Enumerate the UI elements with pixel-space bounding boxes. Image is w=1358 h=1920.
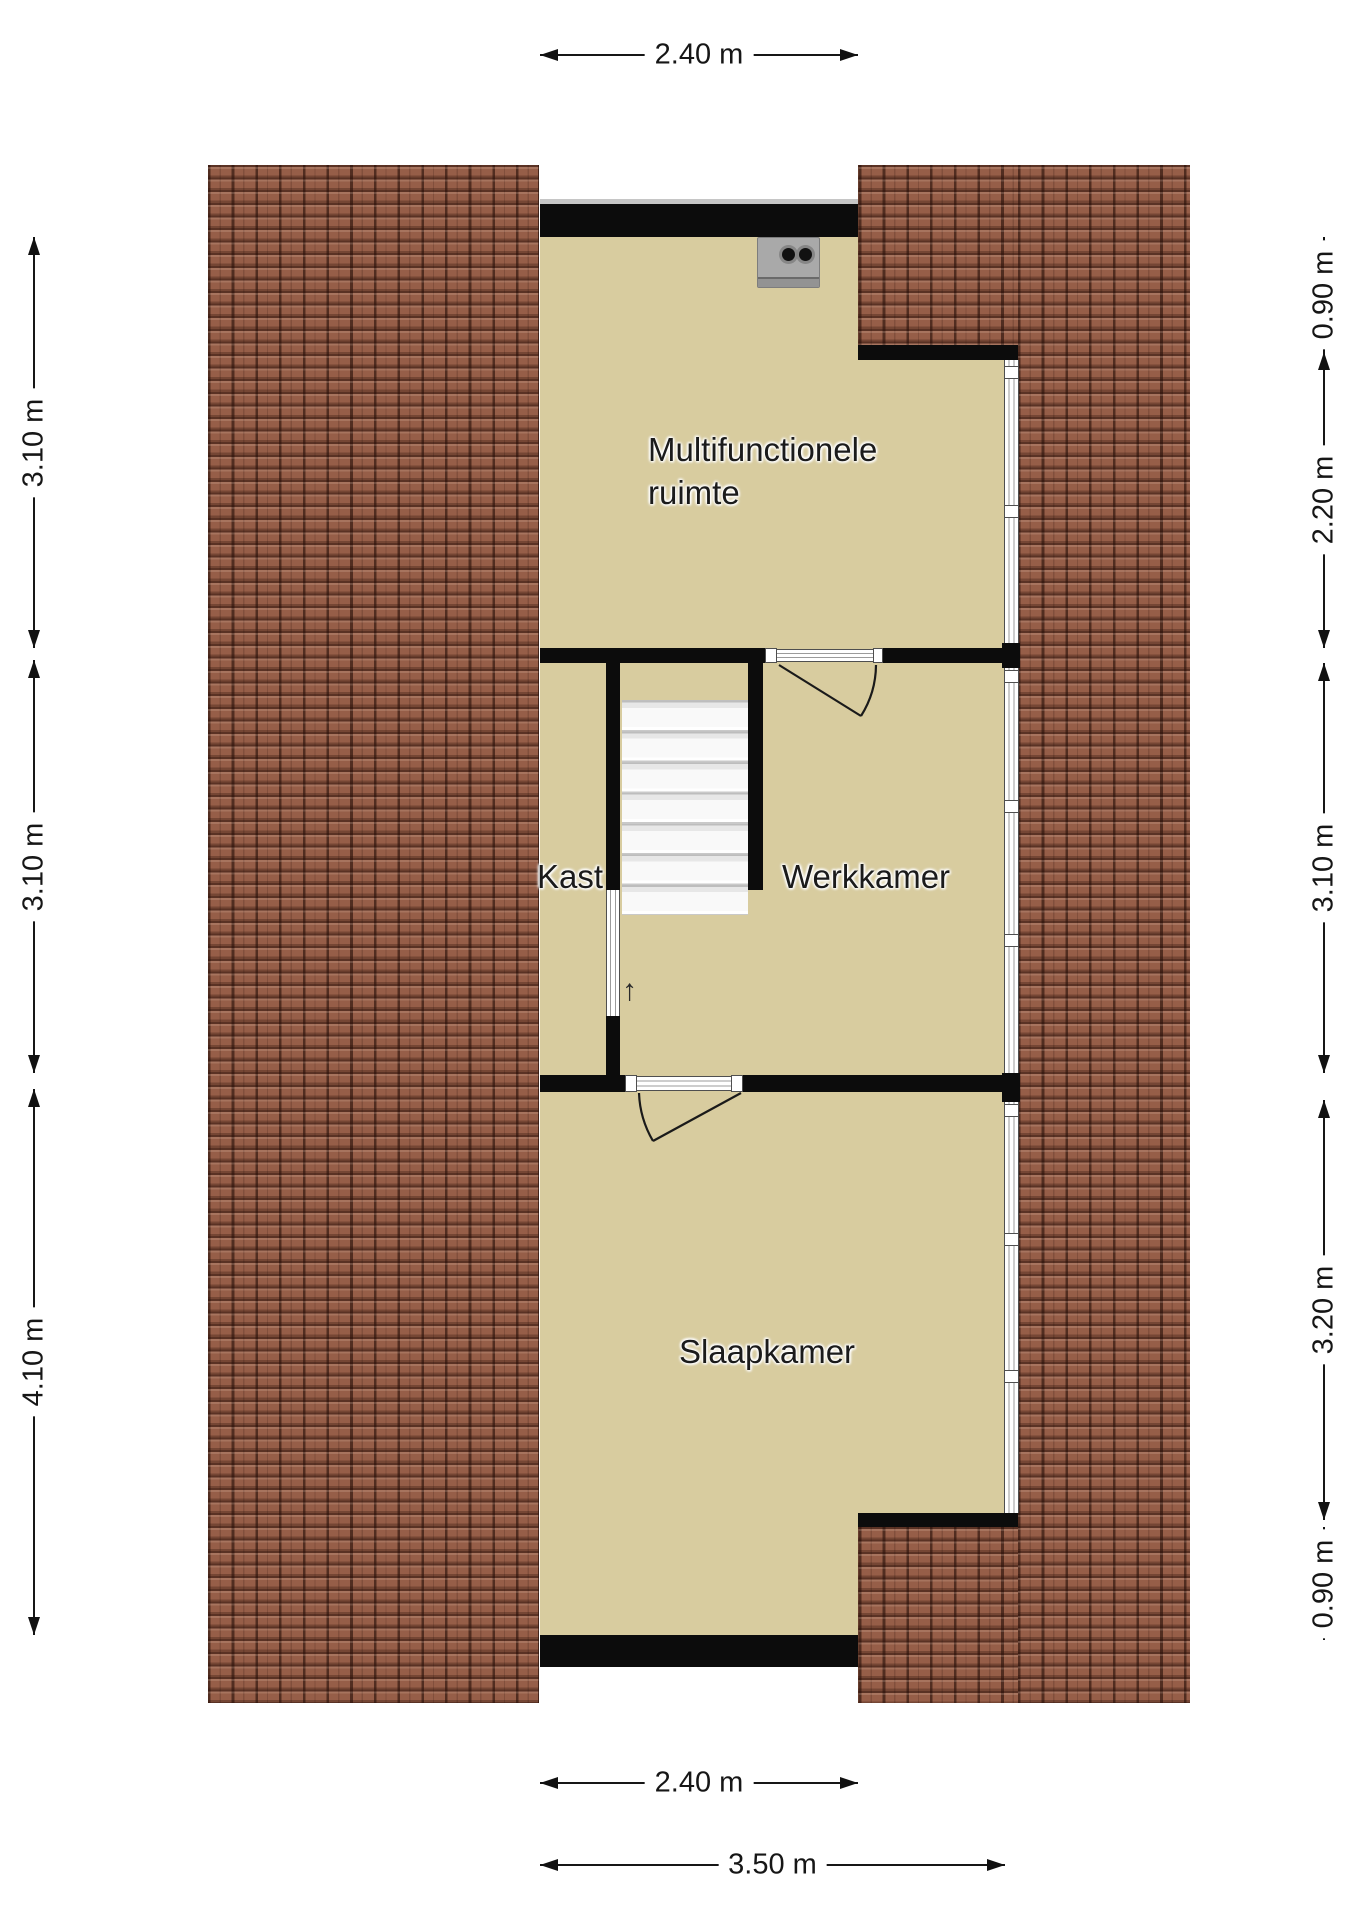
slaapkamer-door-jamb-right — [731, 1075, 743, 1092]
dimension-label: 3.20 m — [1306, 1256, 1343, 1365]
dimension-label: 2.20 m — [1306, 446, 1343, 555]
roof-right-bottom-notch — [858, 1527, 1018, 1703]
slaapkamer-door-jamb-left — [625, 1075, 637, 1092]
dimension-label: 0.90 m — [1306, 240, 1343, 349]
werkkamer-door-jamb-right — [873, 648, 883, 663]
dimension-label: 3.10 m — [16, 812, 53, 921]
dimension-label: 2.40 m — [645, 1767, 754, 1800]
step-wall-bottom — [858, 1513, 1018, 1527]
window-wall-stub-upper — [1002, 643, 1020, 668]
room-label-kast: Kast — [537, 858, 603, 896]
dimension-label: 2.40 m — [645, 39, 754, 72]
window-divider — [1004, 800, 1019, 813]
dimension-label: 3.10 m — [16, 388, 53, 497]
wall-werkkamer-slaapkamer-left — [540, 1075, 625, 1092]
dimension-label: 3.50 m — [718, 1849, 827, 1882]
roof-right — [1018, 165, 1190, 1703]
room-label-slaapkamer: Slaapkamer — [679, 1333, 855, 1371]
roof-left — [208, 165, 539, 1703]
kast-door — [606, 890, 620, 1016]
stairs — [622, 700, 748, 915]
dimension-label: 0.90 m — [1306, 1529, 1343, 1638]
window-divider — [1004, 934, 1019, 947]
window-divider — [1004, 1370, 1019, 1383]
ventilation-unit — [757, 237, 820, 288]
room-label-werkkamer: Werkkamer — [782, 858, 950, 896]
room-label-line1: Multifunctionele — [648, 428, 877, 471]
window-divider — [1004, 1233, 1019, 1246]
vent-dot-icon — [782, 248, 795, 261]
wall-multifunctionele-werkkamer-right — [883, 648, 1005, 663]
window-divider — [1004, 1104, 1019, 1117]
dimension-label: 4.10 m — [16, 1308, 53, 1417]
wall-werkkamer-slaapkamer-right — [743, 1075, 1005, 1092]
wall-multifunctionele-werkkamer-left — [540, 648, 765, 663]
bottom-wall — [540, 1635, 858, 1667]
dimension-label: 3.10 m — [1306, 814, 1343, 923]
room-label-multifunctionele-ruimte: Multifunctionele ruimte — [648, 428, 877, 514]
slaapkamer-door — [637, 1076, 731, 1091]
top-wall — [540, 204, 858, 237]
window-divider — [1004, 505, 1019, 518]
werkkamer-door — [777, 649, 873, 662]
roof-right-top-notch — [858, 165, 1018, 345]
room-label-line2: ruimte — [648, 471, 877, 514]
stairs-direction-icon: ↑ — [622, 976, 637, 1006]
floorplan: ↑ Multifunctionele ruimte Kast Werkkamer… — [0, 0, 1358, 1920]
window-wall-stub-lower — [1002, 1073, 1020, 1102]
step-wall-top — [858, 345, 1018, 360]
stairwell-wall-right — [748, 663, 763, 890]
werkkamer-door-jamb-left — [765, 648, 777, 663]
window-divider — [1004, 670, 1019, 683]
window-divider — [1004, 366, 1019, 379]
vent-strip — [758, 277, 819, 287]
stairwell-wall-left-upper — [606, 663, 620, 890]
vent-dot-icon — [799, 248, 812, 261]
